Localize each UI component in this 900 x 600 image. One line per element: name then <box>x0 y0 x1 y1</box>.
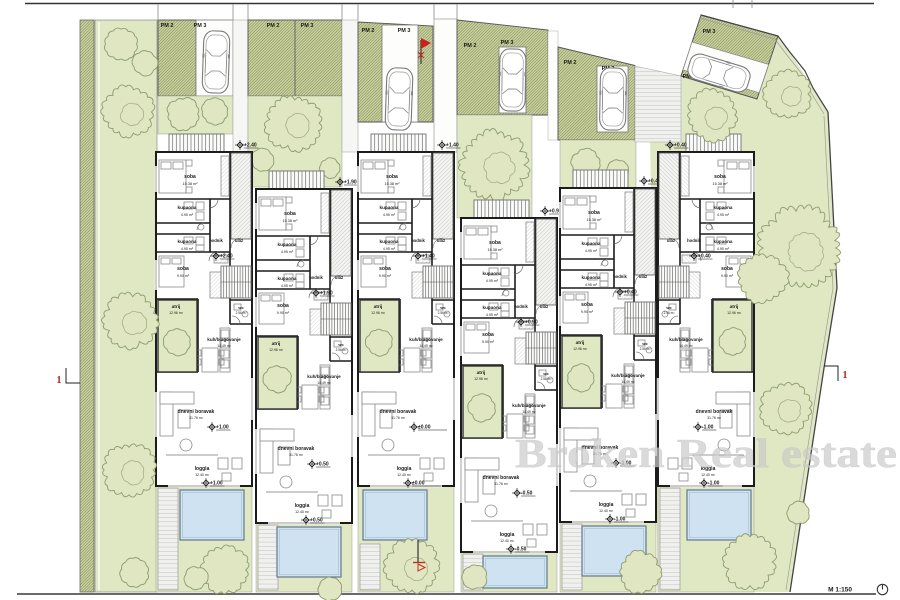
svg-text:12.40 m²: 12.40 m² <box>195 473 210 477</box>
svg-text:hodnik: hodnik <box>209 238 223 243</box>
svg-text:1: 1 <box>57 375 62 386</box>
svg-text:atrij: atrij <box>576 340 585 346</box>
svg-text:soba: soba <box>588 210 600 216</box>
svg-text:31.76 m²: 31.76 m² <box>494 482 509 486</box>
svg-text:±0.00: ±0.00 <box>418 425 431 431</box>
svg-text:14.49 m²: 14.49 m² <box>679 344 693 348</box>
svg-text:wc: wc <box>542 371 549 376</box>
svg-text:atrij: atrij <box>730 304 739 310</box>
svg-text:kuh/blagovanje: kuh/blagovanje <box>409 337 443 342</box>
svg-text:PM 3: PM 3 <box>301 23 314 29</box>
svg-text:soba: soba <box>379 266 391 272</box>
svg-text:±0.00: ±0.00 <box>412 481 425 487</box>
svg-text:loggia: loggia <box>397 466 412 472</box>
svg-text:loggia: loggia <box>500 532 515 538</box>
svg-text:14.49 m²: 14.49 m² <box>522 410 536 414</box>
svg-text:+0.40: +0.40 <box>624 290 637 296</box>
svg-text:31.76 m²: 31.76 m² <box>391 416 406 420</box>
svg-text:+1.00: +1.00 <box>216 425 229 431</box>
svg-text:15.38 m²: 15.38 m² <box>587 218 603 222</box>
svg-text:4.95 m²: 4.95 m² <box>717 247 730 251</box>
svg-text:14.49 m²: 14.49 m² <box>419 344 433 348</box>
svg-text:kupaona: kupaona <box>380 205 399 210</box>
svg-text:+1.90: +1.90 <box>320 291 333 297</box>
svg-text:1: 1 <box>843 370 848 381</box>
svg-text:PM 2: PM 2 <box>564 60 577 66</box>
svg-text:2.56 m²: 2.56 m² <box>640 347 651 351</box>
svg-text:ulaz: ulaz <box>437 238 445 243</box>
svg-text:-0.50: -0.50 <box>521 491 533 497</box>
svg-text:2.56 m²: 2.56 m² <box>336 348 347 352</box>
svg-text:wc: wc <box>439 305 446 310</box>
svg-text:4.95 m²: 4.95 m² <box>383 247 396 251</box>
svg-text:dnevni boravak: dnevni boravak <box>380 409 417 415</box>
svg-text:4.95 m²: 4.95 m² <box>486 313 499 317</box>
svg-text:+0.40: +0.40 <box>674 143 687 149</box>
svg-text:wc: wc <box>237 305 244 310</box>
svg-text:kupaona: kupaona <box>278 276 297 281</box>
svg-text:kupaona: kupaona <box>483 305 502 310</box>
svg-text:kupaona: kupaona <box>714 205 733 210</box>
svg-text:+0.90: +0.90 <box>525 320 538 326</box>
svg-text:PM 2: PM 2 <box>464 43 477 49</box>
svg-text:soba: soba <box>177 266 189 272</box>
svg-text:kuh/blagovanje: kuh/blagovanje <box>207 337 241 342</box>
svg-text:12.96 m²: 12.96 m² <box>573 347 588 351</box>
svg-text:soba: soba <box>721 266 733 272</box>
svg-text:15.38 m²: 15.38 m² <box>713 182 729 186</box>
svg-text:PM 2: PM 2 <box>161 23 174 29</box>
svg-text:kupaona: kupaona <box>380 239 399 244</box>
svg-text:+0.50: +0.50 <box>310 518 323 524</box>
svg-text:hodnik: hodnik <box>411 238 425 243</box>
svg-text:9.90 m²: 9.90 m² <box>277 311 290 315</box>
svg-text:dnevni boravak: dnevni boravak <box>278 446 315 452</box>
svg-text:dnevni boravak: dnevni boravak <box>696 409 733 415</box>
svg-text:kupaona: kupaona <box>582 241 601 246</box>
svg-text:ulaz: ulaz <box>335 275 343 280</box>
svg-text:2.56 m²: 2.56 m² <box>236 311 247 315</box>
svg-text:+2.40: +2.40 <box>220 254 233 260</box>
svg-text:hodnik: hodnik <box>687 238 701 243</box>
svg-text:ulaz: ulaz <box>540 304 548 309</box>
svg-text:kupaona: kupaona <box>714 239 733 244</box>
svg-text:12.40 m²: 12.40 m² <box>397 473 412 477</box>
svg-text:15.38 m²: 15.38 m² <box>283 219 299 223</box>
svg-text:kuh/blagovanje: kuh/blagovanje <box>611 373 645 378</box>
svg-text:4.95 m²: 4.95 m² <box>281 284 294 288</box>
svg-text:31.76 m²: 31.76 m² <box>189 416 204 420</box>
svg-text:soba: soba <box>714 174 726 180</box>
svg-text:soba: soba <box>482 332 494 338</box>
svg-text:9.90 m²: 9.90 m² <box>721 274 734 278</box>
svg-text:wc: wc <box>337 342 344 347</box>
svg-text:kupaona: kupaona <box>178 239 197 244</box>
svg-text:loggia: loggia <box>295 503 310 509</box>
svg-text:9.90 m²: 9.90 m² <box>177 274 190 278</box>
svg-text:kupaona: kupaona <box>278 242 297 247</box>
svg-text:Broken Real estate: Broken Real estate <box>515 430 897 476</box>
svg-text:15.38 m²: 15.38 m² <box>385 182 401 186</box>
svg-text:12.40 m²: 12.40 m² <box>599 509 614 513</box>
svg-text:hodnik: hodnik <box>613 274 627 279</box>
svg-text:31.76 m²: 31.76 m² <box>707 416 722 420</box>
svg-text:soba: soba <box>489 240 501 246</box>
svg-text:kupaona: kupaona <box>582 275 601 280</box>
svg-text:M 1:150: M 1:150 <box>828 587 852 594</box>
svg-text:kupaona: kupaona <box>178 205 197 210</box>
svg-text:4.95 m²: 4.95 m² <box>181 247 194 251</box>
svg-text:soba: soba <box>386 174 398 180</box>
svg-text:ulaz: ulaz <box>235 238 243 243</box>
svg-text:soba: soba <box>277 303 289 309</box>
svg-text:9.90 m²: 9.90 m² <box>379 274 392 278</box>
svg-text:2.56 m²: 2.56 m² <box>541 377 552 381</box>
svg-text:4.95 m²: 4.95 m² <box>585 249 598 253</box>
svg-text:dnevni boravak: dnevni boravak <box>178 409 215 415</box>
svg-text:ulaz: ulaz <box>639 274 647 279</box>
svg-text:4.95 m²: 4.95 m² <box>383 213 396 217</box>
svg-text:soba: soba <box>581 302 593 308</box>
svg-text:+0.50: +0.50 <box>316 462 329 468</box>
svg-text:loggia: loggia <box>195 466 210 472</box>
svg-text:14.49 m²: 14.49 m² <box>217 344 231 348</box>
svg-text:atrij: atrij <box>477 370 486 376</box>
svg-text:+1.90: +1.90 <box>344 180 357 186</box>
svg-text:4.95 m²: 4.95 m² <box>181 213 194 217</box>
svg-text:12.40 m²: 12.40 m² <box>295 510 310 514</box>
svg-text:atrij: atrij <box>172 304 181 310</box>
svg-text:ulaz: ulaz <box>667 238 675 243</box>
svg-text:atrij: atrij <box>374 304 383 310</box>
svg-text:31.76 m²: 31.76 m² <box>289 453 304 457</box>
svg-text:12.96 m²: 12.96 m² <box>269 348 284 352</box>
svg-text:atrij: atrij <box>272 341 281 347</box>
svg-text:4.95 m²: 4.95 m² <box>717 213 730 217</box>
svg-text:PM 3: PM 3 <box>703 29 716 35</box>
svg-text:wc: wc <box>641 341 648 346</box>
svg-text:9.90 m²: 9.90 m² <box>482 340 495 344</box>
svg-text:kuh/blagovanje: kuh/blagovanje <box>307 374 341 379</box>
svg-text:hodnik: hodnik <box>309 275 323 280</box>
svg-text:2.56 m²: 2.56 m² <box>664 311 675 315</box>
svg-text:+0.40: +0.40 <box>698 254 711 260</box>
svg-text:PM 2: PM 2 <box>362 28 375 34</box>
svg-text:12.96 m²: 12.96 m² <box>474 377 489 381</box>
svg-text:PM 2: PM 2 <box>267 23 280 29</box>
svg-text:loggia: loggia <box>599 502 614 508</box>
svg-text:4.95 m²: 4.95 m² <box>585 283 598 287</box>
svg-text:12.96 m²: 12.96 m² <box>371 311 386 315</box>
svg-text:12.96 m²: 12.96 m² <box>169 311 184 315</box>
svg-text:2.56 m²: 2.56 m² <box>438 311 449 315</box>
svg-text:wc: wc <box>665 305 672 310</box>
svg-text:soba: soba <box>284 211 296 217</box>
svg-text:PM 3: PM 3 <box>501 40 514 46</box>
svg-text:-1.00: -1.00 <box>614 517 626 523</box>
svg-text:4.95 m²: 4.95 m² <box>486 279 499 283</box>
svg-text:-1.00: -1.00 <box>708 481 720 487</box>
svg-text:9.90 m²: 9.90 m² <box>581 310 594 314</box>
svg-text:15.38 m²: 15.38 m² <box>488 248 504 252</box>
svg-text:12.96 m²: 12.96 m² <box>727 311 742 315</box>
svg-text:+2.40: +2.40 <box>244 143 257 149</box>
svg-text:+1.00: +1.00 <box>210 481 223 487</box>
svg-text:-0.50: -0.50 <box>515 547 527 553</box>
svg-text:kupaona: kupaona <box>483 271 502 276</box>
svg-text:15.38 m²: 15.38 m² <box>183 182 199 186</box>
svg-text:hodnik: hodnik <box>514 304 528 309</box>
svg-text:14.49 m²: 14.49 m² <box>621 380 635 384</box>
svg-text:soba: soba <box>184 174 196 180</box>
svg-text:+1.40: +1.40 <box>422 254 435 260</box>
svg-text:PM 3: PM 3 <box>398 28 411 34</box>
svg-text:4.95 m²: 4.95 m² <box>281 250 294 254</box>
svg-text:14.49 m²: 14.49 m² <box>317 381 331 385</box>
svg-text:kuh/blagovanje: kuh/blagovanje <box>669 337 703 342</box>
svg-text:kuh/blagovanje: kuh/blagovanje <box>512 403 546 408</box>
svg-text:12.40 m²: 12.40 m² <box>500 539 515 543</box>
svg-text:+1.40: +1.40 <box>446 143 459 149</box>
svg-text:PM 3: PM 3 <box>194 23 207 29</box>
